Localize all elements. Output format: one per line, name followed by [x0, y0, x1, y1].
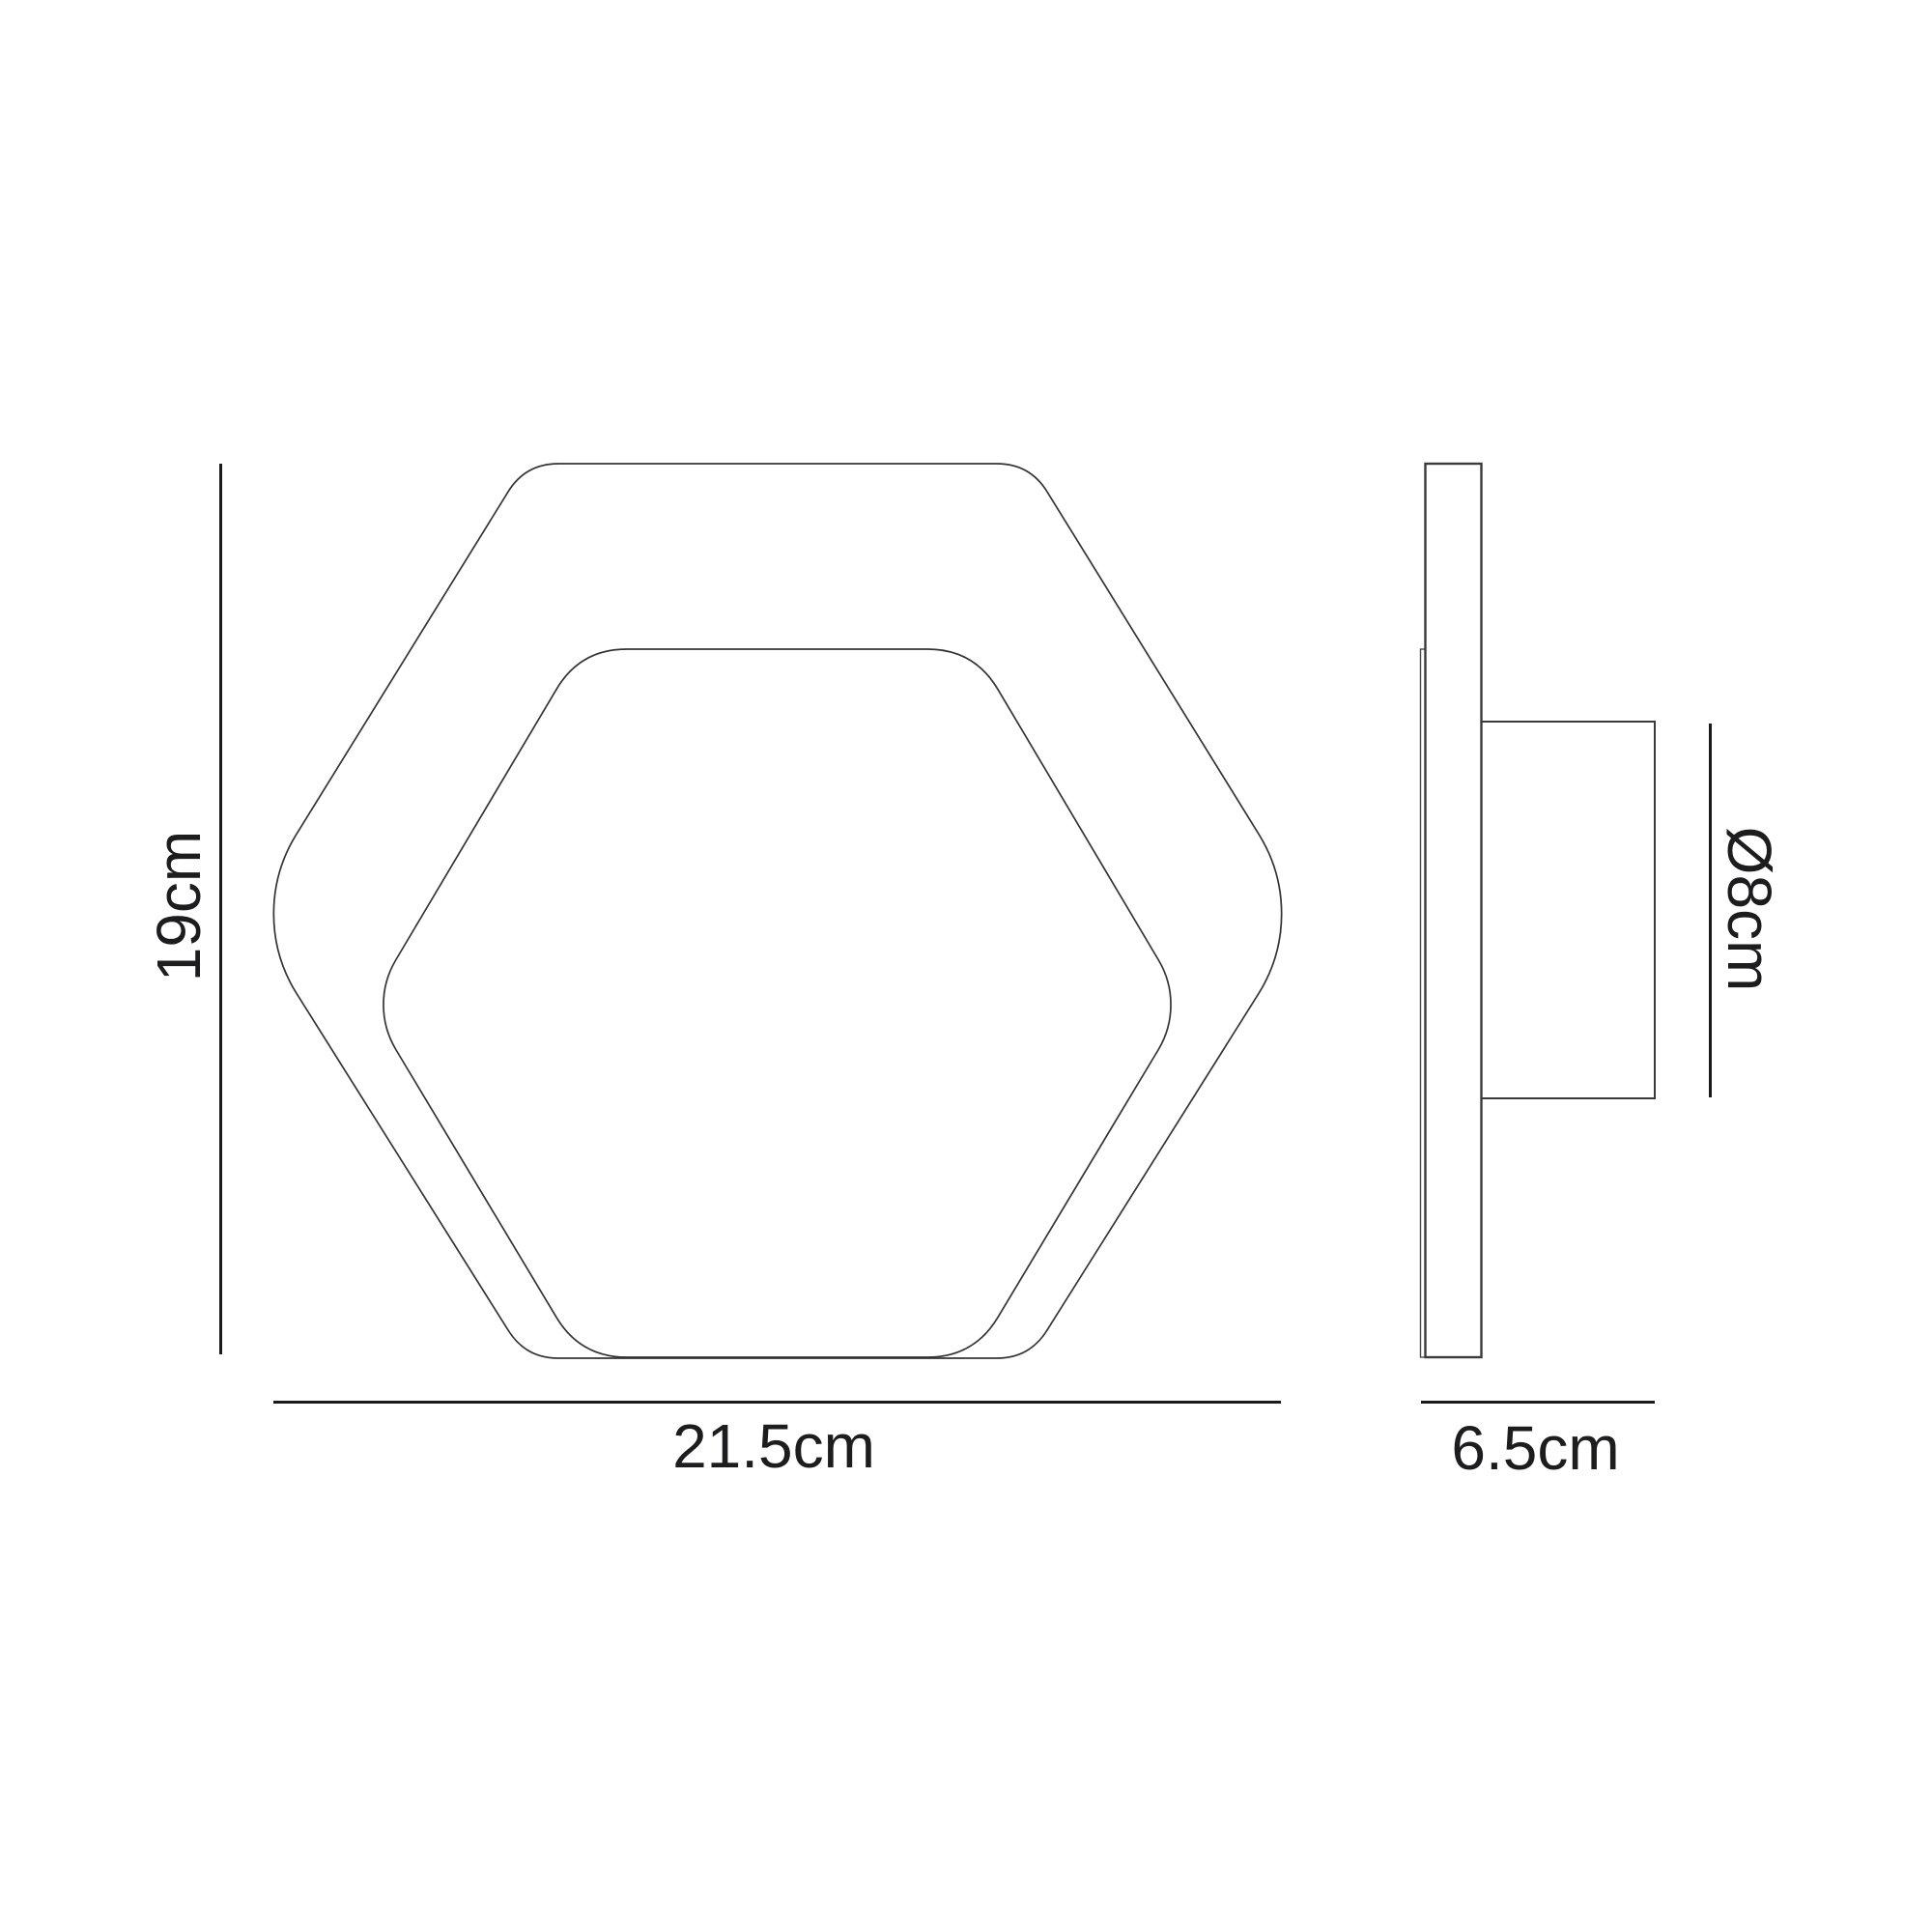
svg-text:6.5cm: 6.5cm: [1451, 1413, 1619, 1483]
svg-text:Ø8cm: Ø8cm: [1715, 827, 1784, 992]
svg-text:21.5cm: 21.5cm: [672, 1411, 875, 1481]
svg-text:19cm: 19cm: [144, 831, 213, 982]
